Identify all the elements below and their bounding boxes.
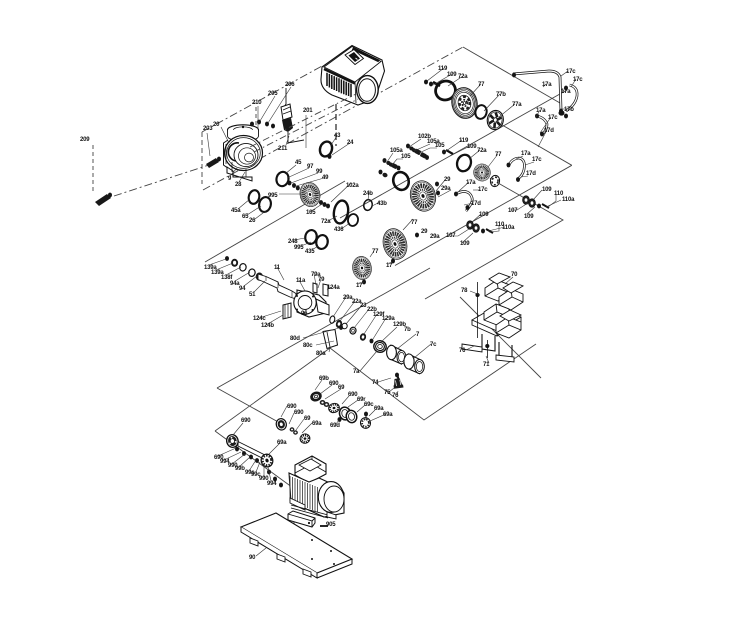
svg-text:17d: 17d [526, 171, 536, 177]
svg-text:105: 105 [401, 154, 411, 160]
svg-text:17: 17 [386, 263, 393, 269]
svg-text:201: 201 [303, 108, 313, 114]
svg-text:69a: 69a [277, 440, 287, 446]
svg-text:29a: 29a [441, 186, 451, 192]
svg-text:69: 69 [338, 385, 345, 391]
svg-text:109: 109 [479, 212, 489, 218]
svg-text:7a: 7a [353, 369, 360, 375]
svg-text:17c: 17c [478, 187, 488, 193]
svg-text:17a: 17a [466, 180, 476, 186]
svg-text:94: 94 [239, 286, 246, 292]
svg-text:69c: 69c [364, 402, 374, 408]
svg-text:77: 77 [478, 82, 485, 88]
svg-text:17a: 17a [521, 151, 531, 157]
svg-text:69b: 69b [319, 376, 329, 382]
svg-text:45: 45 [295, 160, 302, 166]
svg-text:203: 203 [203, 126, 213, 132]
svg-text:28: 28 [235, 182, 242, 188]
svg-text:78: 78 [461, 288, 468, 294]
svg-text:435: 435 [305, 249, 315, 255]
svg-text:43: 43 [334, 133, 341, 139]
svg-text:107: 107 [508, 208, 518, 214]
svg-text:69a: 69a [383, 412, 393, 418]
svg-text:124a: 124a [327, 285, 340, 291]
svg-text:209: 209 [80, 137, 90, 143]
svg-text:436: 436 [334, 227, 344, 233]
svg-text:124c: 124c [253, 316, 266, 322]
svg-text:77: 77 [411, 220, 418, 226]
svg-text:109: 109 [467, 144, 477, 150]
svg-text:90: 90 [249, 555, 256, 561]
svg-text:994: 994 [267, 481, 277, 487]
svg-text:75: 75 [384, 390, 391, 396]
svg-text:11: 11 [274, 265, 281, 271]
svg-text:24: 24 [347, 140, 354, 146]
svg-text:97: 97 [307, 164, 314, 170]
svg-text:205: 205 [268, 91, 278, 97]
svg-text:17b: 17b [564, 107, 574, 113]
svg-text:51: 51 [249, 292, 256, 298]
svg-text:7b: 7b [404, 327, 411, 333]
svg-text:17c: 17c [573, 77, 583, 83]
svg-text:690: 690 [294, 410, 304, 416]
svg-text:79: 79 [318, 277, 325, 283]
svg-text:77: 77 [495, 152, 502, 158]
svg-text:206: 206 [285, 82, 295, 88]
svg-text:77b: 77b [496, 92, 506, 98]
svg-text:17a: 17a [542, 82, 552, 88]
svg-text:29a: 29a [430, 234, 440, 240]
svg-text:77: 77 [372, 249, 379, 255]
svg-text:69a: 69a [312, 421, 322, 427]
svg-text:29: 29 [421, 229, 428, 235]
svg-text:211: 211 [278, 146, 288, 152]
svg-text:29: 29 [444, 177, 451, 183]
svg-text:905: 905 [326, 522, 336, 528]
svg-text:71: 71 [483, 362, 490, 368]
svg-text:102a: 102a [346, 183, 359, 189]
svg-text:995: 995 [294, 245, 304, 251]
svg-text:80d: 80d [290, 336, 300, 342]
svg-text:72a: 72a [458, 74, 468, 80]
svg-text:80c: 80c [303, 343, 313, 349]
svg-text:124b: 124b [261, 323, 274, 329]
svg-text:110a: 110a [502, 225, 515, 231]
svg-text:110a: 110a [562, 197, 575, 203]
svg-text:109: 109 [460, 241, 470, 247]
svg-text:26: 26 [249, 218, 256, 224]
svg-text:77a: 77a [512, 102, 522, 108]
svg-text:69d: 69d [330, 423, 340, 429]
svg-text:17a: 17a [536, 108, 546, 114]
svg-text:99b: 99b [235, 466, 245, 472]
svg-text:17c: 17c [566, 69, 576, 75]
svg-text:69: 69 [304, 416, 311, 422]
svg-text:109: 109 [447, 72, 457, 78]
svg-text:20: 20 [213, 122, 220, 128]
svg-text:17c: 17c [532, 157, 542, 163]
svg-text:45a: 45a [231, 208, 241, 214]
svg-text:76: 76 [392, 393, 399, 399]
svg-text:17: 17 [356, 283, 363, 289]
svg-text:105: 105 [435, 143, 445, 149]
svg-text:43b: 43b [377, 201, 387, 207]
svg-text:49: 49 [322, 175, 329, 181]
svg-text:17d: 17d [471, 201, 481, 207]
svg-text:17d: 17d [544, 128, 554, 134]
svg-text:210: 210 [252, 100, 262, 106]
svg-text:11a: 11a [296, 278, 306, 284]
svg-text:109: 109 [524, 214, 534, 220]
svg-text:70: 70 [511, 272, 518, 278]
svg-text:80a: 80a [316, 351, 326, 357]
svg-text:17c: 17c [548, 115, 558, 121]
svg-text:96: 96 [301, 311, 308, 317]
svg-text:995: 995 [268, 193, 278, 199]
svg-text:7c: 7c [430, 342, 437, 348]
svg-text:72a: 72a [321, 219, 331, 225]
svg-text:76: 76 [459, 348, 466, 354]
svg-text:72a: 72a [477, 148, 487, 154]
svg-text:105: 105 [306, 210, 316, 216]
svg-text:690: 690 [241, 418, 251, 424]
svg-text:24b: 24b [363, 191, 373, 197]
svg-text:17a: 17a [561, 89, 571, 95]
svg-text:74: 74 [372, 380, 379, 386]
svg-text:107: 107 [446, 233, 456, 239]
svg-text:109: 109 [542, 187, 552, 193]
